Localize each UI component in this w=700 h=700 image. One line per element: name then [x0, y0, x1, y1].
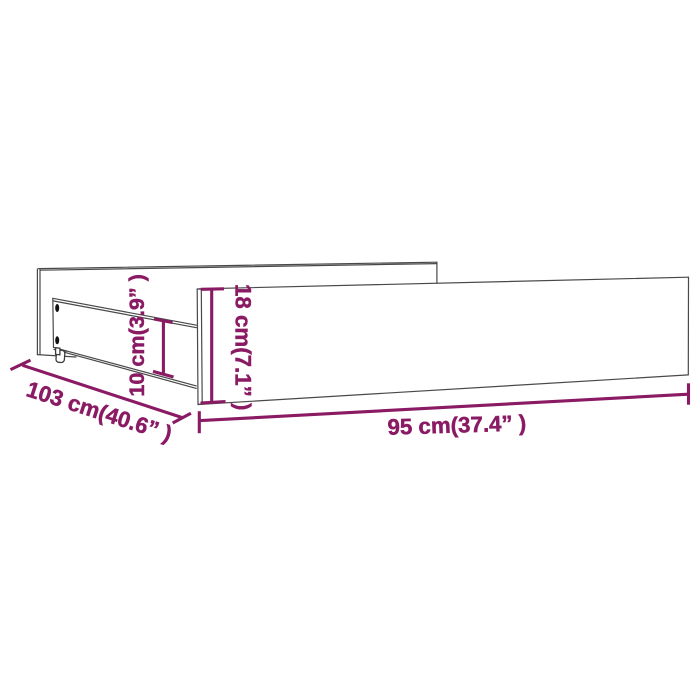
svg-text:95 cm(37.4” ): 95 cm(37.4” ): [387, 410, 527, 439]
svg-text:18 cm(7.1” ): 18 cm(7.1” ): [231, 284, 256, 410]
svg-text:10 cm(3.9” ): 10 cm(3.9” ): [124, 274, 149, 396]
